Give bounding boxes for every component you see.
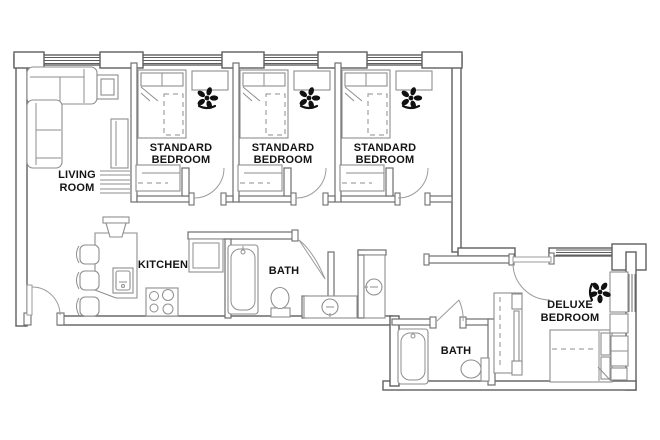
entry-door <box>27 285 60 315</box>
bed-icon <box>138 70 186 138</box>
pilaster <box>222 52 264 68</box>
bar-stool-icon <box>77 271 100 290</box>
bedroom2-door <box>296 168 326 198</box>
bed-icon <box>240 70 288 138</box>
bedroom2-label: STANDARD <box>252 142 315 154</box>
kitchen-label: KITCHEN <box>138 259 188 271</box>
floor-plan-drawing: LIVING ROOM STANDARD BEDROOM STANDARD BE… <box>0 0 660 440</box>
wardrobe-icon <box>238 165 282 191</box>
bedroom3-door <box>398 168 428 198</box>
side-table-icon <box>97 75 118 99</box>
tv-stand-icon <box>111 119 128 168</box>
vanity-sink-icon <box>364 255 385 318</box>
deluxe-bedroom-label: BEDROOM <box>541 312 600 324</box>
bedroom3-label: BEDROOM <box>356 154 415 166</box>
desk-icon <box>610 272 628 312</box>
bathtub-icon <box>228 245 258 314</box>
deluxe-bedroom-label: DELUXE <box>547 299 593 311</box>
bath1-label: BATH <box>269 265 300 277</box>
bathtub-icon <box>398 329 428 384</box>
bedroom1-label: STANDARD <box>150 142 213 154</box>
dresser-icon <box>611 336 628 380</box>
vanity-sink-icon <box>304 296 357 318</box>
pilaster <box>318 52 367 68</box>
bar-stool-icon <box>77 245 100 264</box>
bedroom1-door <box>194 168 224 198</box>
bath1-door <box>299 240 325 279</box>
desk-icon <box>396 71 432 90</box>
living-room-label: ROOM <box>59 182 94 194</box>
deluxe-bedroom-furniture <box>494 272 628 382</box>
wardrobe-icon <box>136 165 180 191</box>
toilet-icon <box>461 358 489 381</box>
prep-sink-icon <box>113 268 133 293</box>
toilet-icon <box>271 288 290 318</box>
bath2-label: BATH <box>441 345 472 357</box>
bedroom1-label: BEDROOM <box>152 154 211 166</box>
pilaster <box>14 52 44 68</box>
nightstand-icon <box>610 314 628 333</box>
media-console-icon <box>100 171 130 193</box>
stove-icon <box>146 288 178 316</box>
bedroom2-label: BEDROOM <box>254 154 313 166</box>
closet-icon <box>494 293 522 375</box>
desk-icon <box>192 71 228 90</box>
refrigerator-icon <box>189 239 223 272</box>
bar-stool-icon <box>77 297 100 316</box>
desk-icon <box>294 71 330 90</box>
sectional-sofa-icon <box>27 67 97 168</box>
bed-icon <box>550 330 612 382</box>
wardrobe-icon <box>340 165 384 191</box>
living-room-label: LIVING <box>58 169 96 181</box>
pilaster <box>422 52 462 68</box>
bed-icon <box>342 70 390 138</box>
floor-plan: LIVING ROOM STANDARD BEDROOM STANDARD BE… <box>0 0 660 440</box>
bedroom3-label: STANDARD <box>354 142 417 154</box>
bath2-door <box>437 300 463 321</box>
